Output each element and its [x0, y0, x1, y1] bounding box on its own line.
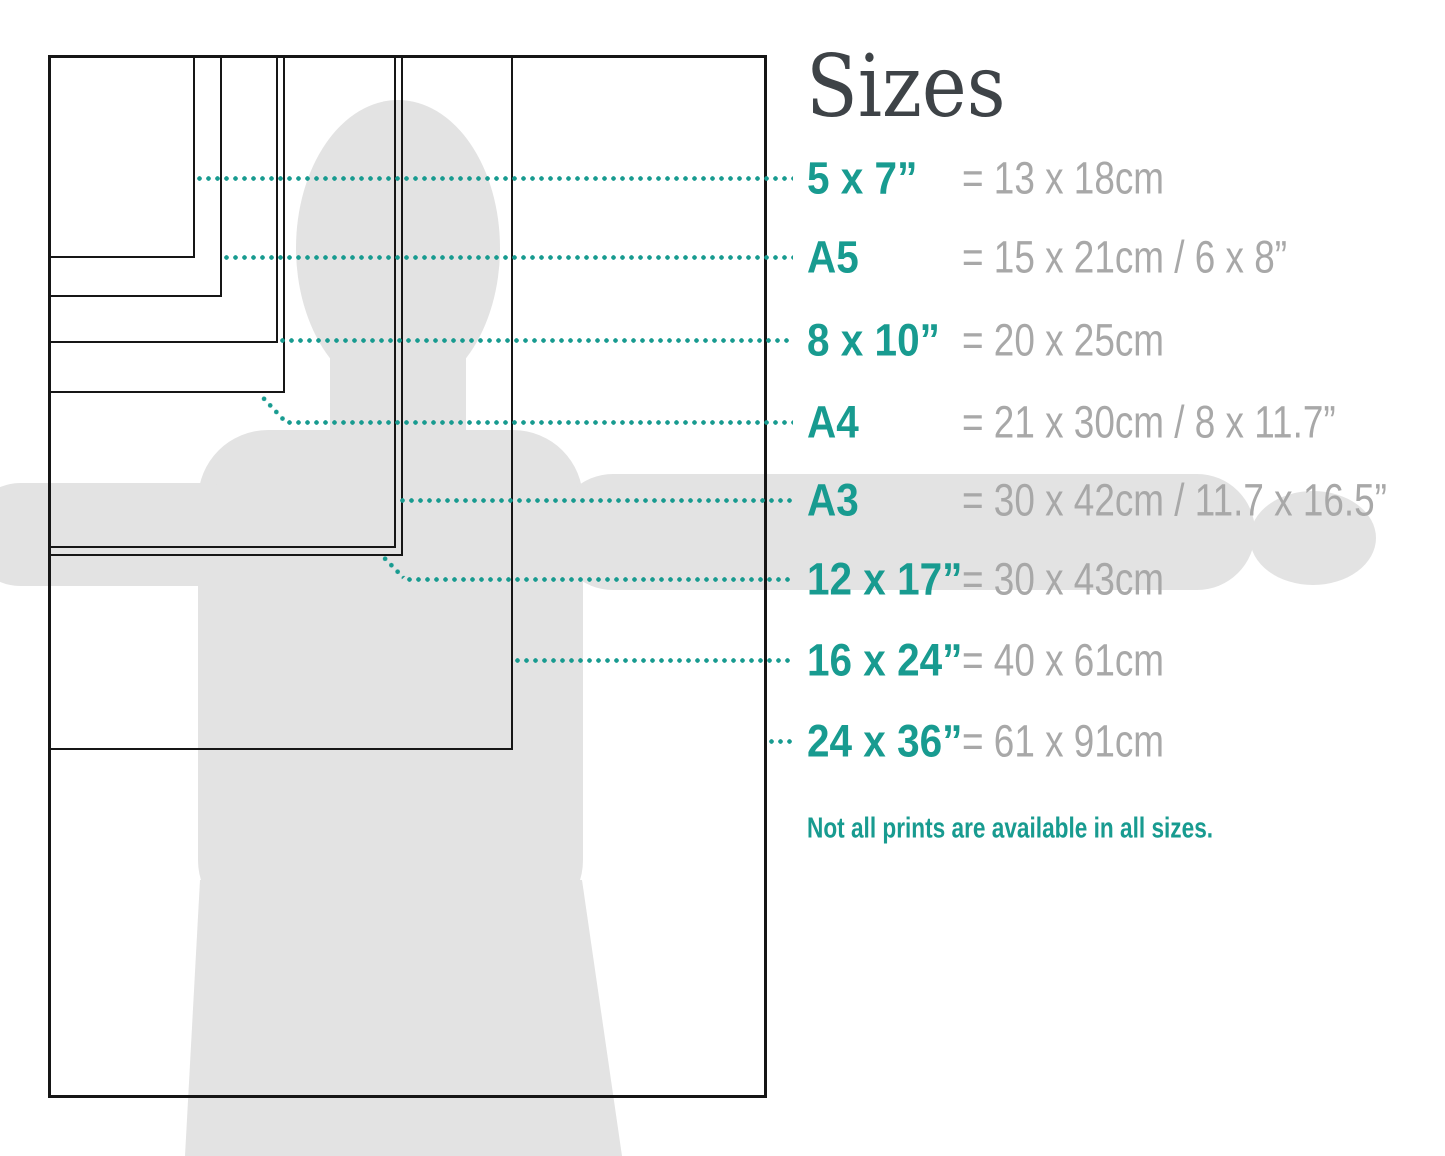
- size-metric-8x10: = 20 x 25cm: [962, 318, 1164, 363]
- size-metric-a4: = 21 x 30cm / 8 x 11.7”: [962, 400, 1336, 445]
- size-label-a5: A5: [807, 235, 859, 280]
- page-title: Sizes: [806, 44, 1006, 130]
- size-metric-16x24: = 40 x 61cm: [962, 638, 1164, 683]
- size-label-a4: A4: [807, 400, 859, 445]
- availability-note: Not all prints are available in all size…: [807, 815, 1213, 844]
- print-size-chart-diagram: Sizes 5 x 7”= 13 x 18cmA5= 15 x 21cm / 6…: [0, 0, 1445, 1156]
- leader-line-16x24: [513, 658, 793, 663]
- leader-line-5x7: [195, 176, 793, 181]
- size-label-5x7: 5 x 7”: [807, 156, 917, 201]
- leader-line-a3: [398, 498, 793, 503]
- size-label-24x36: 24 x 36”: [807, 719, 962, 764]
- leader-line-a4: [285, 420, 793, 425]
- size-metric-12x17: = 30 x 43cm: [962, 557, 1164, 602]
- size-label-12x17: 12 x 17”: [807, 557, 962, 602]
- size-metric-5x7: = 13 x 18cm: [962, 156, 1164, 201]
- size-metric-a3: = 30 x 42cm / 11.7 x 16.5”: [962, 478, 1387, 523]
- leader-line-12x17: [405, 577, 793, 582]
- size-metric-a5: = 15 x 21cm / 6 x 8”: [962, 235, 1287, 280]
- leader-line-8x10: [278, 338, 793, 343]
- size-label-16x24: 16 x 24”: [807, 638, 962, 683]
- size-label-8x10: 8 x 10”: [807, 318, 940, 363]
- size-label-a3: A3: [807, 478, 859, 523]
- size-metric-24x36: = 61 x 91cm: [962, 719, 1164, 764]
- leader-line-24x36: [767, 739, 793, 744]
- leader-line-a5: [222, 255, 793, 260]
